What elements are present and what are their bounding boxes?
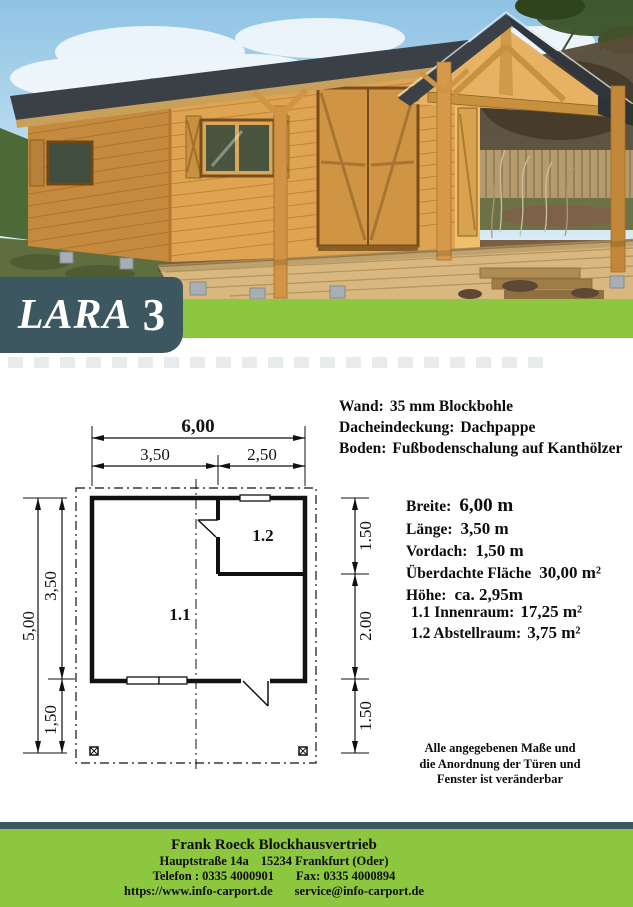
room-spec-label: 1.1 Innenraum: <box>411 604 514 621</box>
room-label-main: 1.1 <box>169 605 190 624</box>
king-post <box>499 28 513 96</box>
dim-storage-depth: 1.50 <box>356 521 375 551</box>
dim-porch-depth-right: 1.50 <box>356 701 375 731</box>
room-spec-value: 3,75 m² <box>527 623 580 642</box>
room-spec-value: 17,25 m² <box>520 602 582 621</box>
footer: Frank Roeck Blockhausvertrieb Hauptstraß… <box>0 829 633 907</box>
room-specs: 1.1 Innenraum:17,25 m² 1.2 Abstellraum:3… <box>411 602 582 644</box>
spec-value: 3,50 m <box>461 519 509 538</box>
plan-posts <box>90 747 307 755</box>
dim-porch-depth: 1,50 <box>41 705 60 735</box>
dimensions-right: 1.50 2.00 1.50 <box>341 498 375 753</box>
cabin-left-wall <box>28 100 170 266</box>
footer-contact: Frank Roeck Blockhausvertrieb Hauptstraß… <box>0 829 548 899</box>
plan-windows <box>127 495 270 684</box>
room-spec-innenraum: 1.1 Innenraum:17,25 m² <box>411 602 582 622</box>
construction-row: Wand:35 mm Blockbohle <box>339 396 631 417</box>
dim-cabin-depth: 3,50 <box>41 571 60 601</box>
note-line: Fenster ist veränderbar <box>404 772 596 788</box>
model-banner: LARA 3 <box>0 277 183 353</box>
spec-label: Überdachte Fläche <box>406 565 531 582</box>
spec-breite: Breite:6,00 m <box>406 495 601 517</box>
spec-label: Vordach: <box>406 543 467 560</box>
spec-flaeche: Überdachte Fläche30,00 m² <box>406 563 601 583</box>
construction-row: Boden:Fußbodenschalung auf Kanthölzer <box>339 438 631 459</box>
spec-vordach: Vordach:1,50 m <box>406 541 601 561</box>
door-storage <box>198 520 218 537</box>
scan-artifact <box>8 357 553 368</box>
construction-value: Dachpappe <box>460 419 535 436</box>
dim-width-storage: 2,50 <box>247 445 277 464</box>
note-line: Alle angegebenen Maße und <box>404 741 596 757</box>
spec-value: 6,00 m <box>459 495 513 516</box>
side-window <box>48 142 92 184</box>
spec-label: Breite: <box>406 498 451 515</box>
phone: Telefon : 0335 4000901 <box>153 869 274 883</box>
dimension-specs: Breite:6,00 m Länge:3,50 m Vordach:1,50 … <box>406 495 601 607</box>
window-main-1 <box>127 677 159 684</box>
website-link[interactable]: https://www.info-carport.de <box>124 884 273 898</box>
spec-label: Länge: <box>406 521 453 538</box>
floor-plan: 6,00 3,50 2,50 5,00 3,50 1,50 <box>15 413 380 808</box>
room-spec-abstellraum: 1.2 Abstellraum:3,75 m² <box>411 623 582 643</box>
model-name: LARA <box>18 291 132 339</box>
cabin-photo <box>0 0 633 299</box>
room-spec-label: 1.2 Abstellraum: <box>411 625 521 642</box>
note-line: die Anordnung der Türen und <box>404 757 596 773</box>
construction-row: Dacheindeckung:Dachpappe <box>339 417 631 438</box>
roof-outline <box>76 479 316 769</box>
dim-total-width: 6,00 <box>181 416 214 437</box>
construction-value: Fußbodenschalung auf Kanthölzer <box>392 440 622 457</box>
plan-doors <box>198 520 270 706</box>
spec-value: 30,00 m² <box>539 563 601 582</box>
web-line: https://www.info-carport.deservice@info-… <box>0 884 548 899</box>
window-storage <box>240 495 270 501</box>
construction-specs: Wand:35 mm Blockbohle Dacheindeckung:Dac… <box>339 396 631 459</box>
room-label-storage: 1.2 <box>252 526 273 545</box>
spec-value: 1,50 m <box>475 541 523 560</box>
front-window <box>186 116 289 178</box>
street: Hauptstraße 14a <box>159 854 248 868</box>
dimensions-top: 6,00 3,50 2,50 <box>92 416 305 486</box>
dim-width-main: 3,50 <box>140 445 170 464</box>
fax: Fax: 0335 4000894 <box>296 869 395 883</box>
disclaimer-note: Alle angegebenen Maße und die Anordnung … <box>404 741 596 788</box>
hedge <box>0 128 30 240</box>
city: 15234 Frankfurt (Oder) <box>261 854 389 868</box>
company-name: Frank Roeck Blockhausvertrieb <box>0 837 548 854</box>
model-number: 3 <box>143 289 166 341</box>
dim-total-depth: 5,00 <box>19 611 38 641</box>
dimensions-left: 5,00 3,50 1,50 <box>19 498 75 753</box>
email-link[interactable]: service@info-carport.de <box>295 884 424 898</box>
footer-divider <box>0 822 633 829</box>
phone-line: Telefon : 0335 4000901Fax: 0335 4000894 <box>0 869 548 884</box>
front-double-door <box>318 88 418 251</box>
dim-main-depth: 2.00 <box>356 611 375 641</box>
shutter-icon <box>30 140 44 186</box>
spec-laenge: Länge:3,50 m <box>406 519 601 539</box>
window-main-2 <box>159 677 187 684</box>
address-line: Hauptstraße 14a15234 Frankfurt (Oder) <box>0 854 548 869</box>
construction-value: 35 mm Blockbohle <box>390 398 513 415</box>
flyer-page: LARA 3 Wand:35 mm Blockbohle Dacheindeck… <box>0 0 633 907</box>
